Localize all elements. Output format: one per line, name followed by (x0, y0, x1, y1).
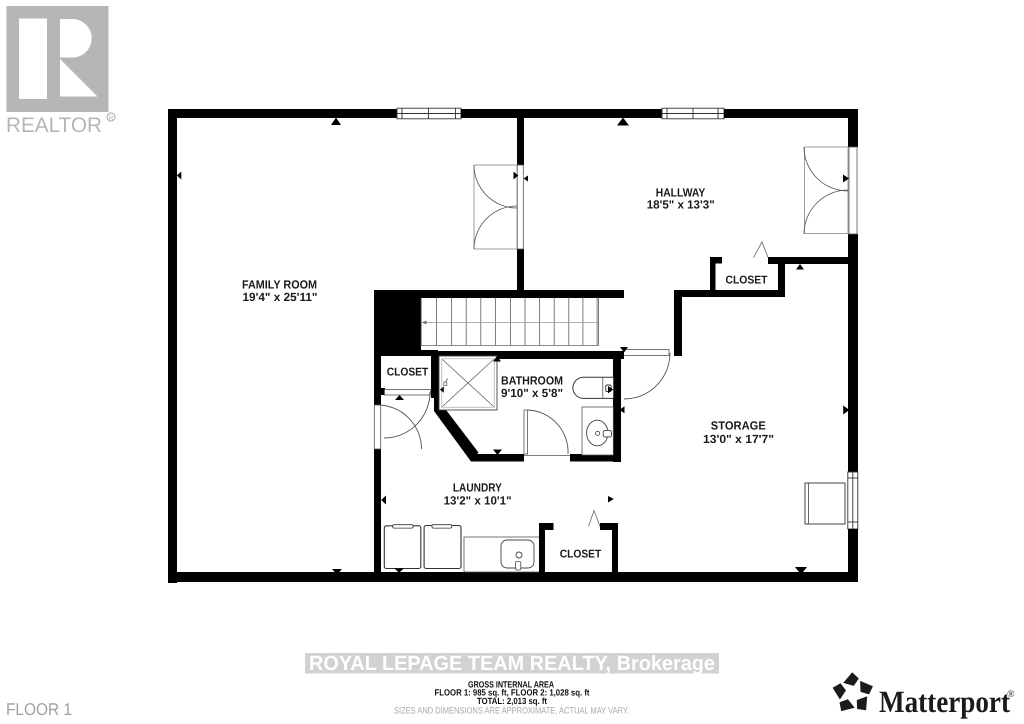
svg-text:LAUNDRY: LAUNDRY (453, 480, 502, 494)
svg-text:STORAGE: STORAGE (711, 419, 766, 433)
svg-text:ROYAL LEPAGE TEAM REALTY, Brok: ROYAL LEPAGE TEAM REALTY, Brokerage (309, 652, 715, 675)
svg-text:R: R (109, 115, 114, 122)
svg-text:18'5" x 13'3": 18'5" x 13'3" (647, 198, 715, 212)
svg-text:SIZES AND DIMENSIONS ARE APPRO: SIZES AND DIMENSIONS ARE APPROXIMATE, AC… (394, 706, 629, 716)
svg-text:CLOSET: CLOSET (560, 549, 602, 561)
svg-text:Matterport: Matterport (879, 684, 1011, 719)
svg-text:9'10" x 5'8": 9'10" x 5'8" (501, 386, 563, 400)
svg-text:TOTAL: 2,013 sq. ft: TOTAL: 2,013 sq. ft (477, 696, 547, 706)
svg-text:13'2" x 10'1": 13'2" x 10'1" (444, 493, 512, 507)
svg-text:19'4" x 25'11": 19'4" x 25'11" (243, 290, 318, 304)
svg-text:13'0" x 17'7": 13'0" x 17'7" (703, 432, 774, 446)
svg-text:FLOOR 1: FLOOR 1 (6, 700, 72, 719)
svg-text:REALTOR: REALTOR (6, 114, 102, 137)
svg-text:CLOSET: CLOSET (387, 367, 429, 379)
svg-text:CLOSET: CLOSET (726, 275, 768, 287)
svg-text:®: ® (1007, 689, 1015, 700)
